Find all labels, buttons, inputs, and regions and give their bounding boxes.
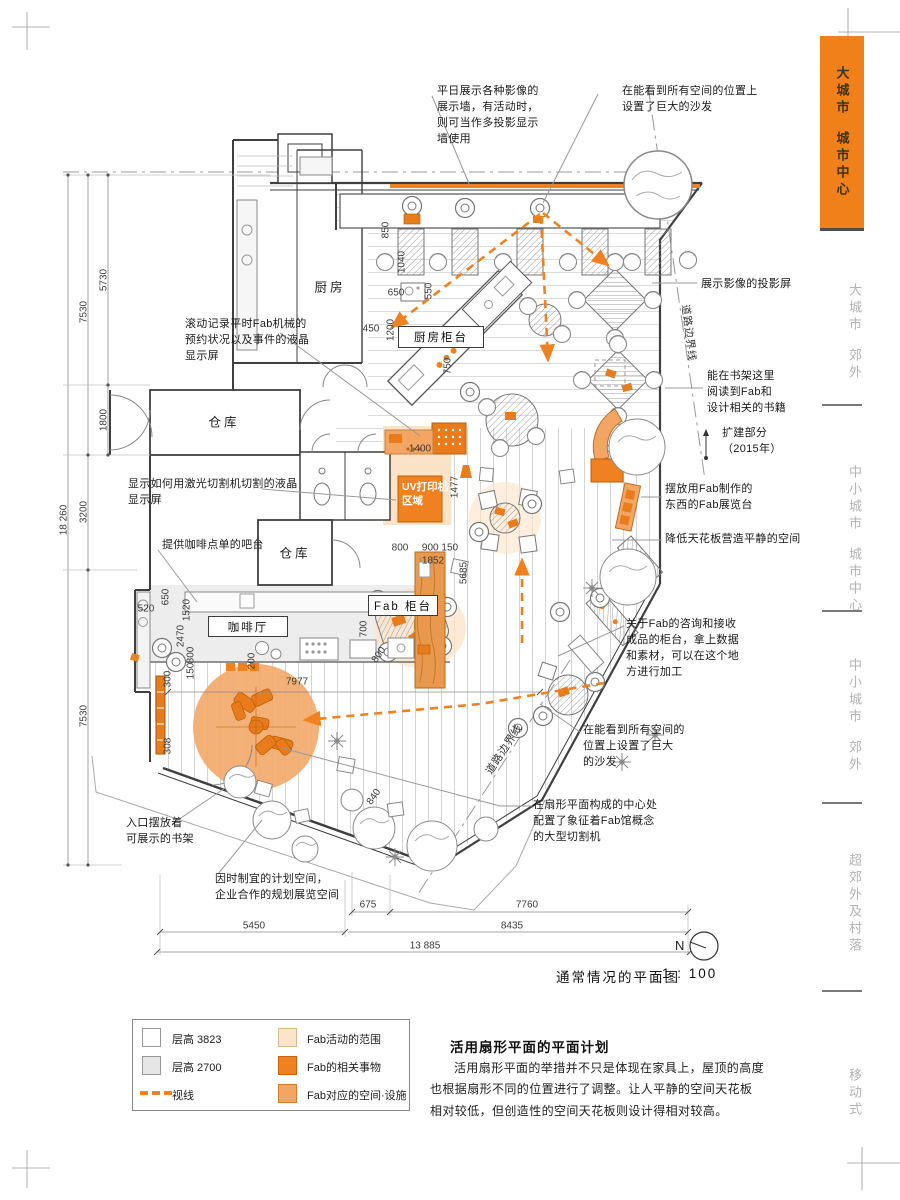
sidebar-item-big-city-center: 大城市城市中心 (820, 36, 864, 231)
legend-label: 层高 3823 (172, 1031, 222, 1047)
legend-label: 层高 2700 (172, 1059, 222, 1075)
dim-7977: 7977 (286, 677, 308, 688)
dim-1520: 1520 (182, 599, 193, 621)
dim-1477: 1477 (450, 476, 461, 498)
dim-900-150: 900 150 (422, 543, 458, 554)
book-page: { "colors": { "accent": "#f0801a", "acce… (0, 0, 900, 1200)
dim-7760: 7760 (516, 900, 538, 911)
dim-800-cafe: 800 (186, 647, 197, 664)
dim-3200: 3200 (79, 501, 90, 523)
dim-1400: 1400 (409, 444, 431, 455)
dim-550: 550 (424, 283, 435, 300)
dim-675: 675 (360, 900, 377, 911)
note-bookshelf-read: 能在书架这里 阅读到Fab和 设计相关的书籍 (707, 369, 786, 417)
note-big-sofa-bottom: 在能看到所有空间的 位置上设置了巨大 的沙发 (583, 723, 685, 771)
room-label-storage-2: 仓库 (279, 543, 310, 562)
legend-label: Fab的相关事物 (307, 1059, 381, 1075)
legend-label: Fab对应的空间·设施 (307, 1087, 407, 1103)
dim-7530-top: 7530 (79, 301, 90, 323)
dim-308: 308 (163, 738, 174, 755)
sidebar-item-mid-city-center: 中小城市城市中心 (820, 465, 864, 615)
room-label-storage-1: 仓库 (208, 412, 239, 431)
sidebar-item-mobile: 移动式 (820, 1068, 864, 1133)
legend-swatch-height-3823 (142, 1028, 161, 1047)
sidebar-divider (822, 610, 862, 612)
note-coffee-bar: 提供咖啡点单的吧台 (162, 538, 264, 554)
dim-2470: 2470 (176, 625, 187, 647)
note-display-wall: 平日展示各种影像的 展示墙，有活动时， 则可当作多投影显示 墙使用 (437, 84, 539, 148)
legend-swatch-sight-line (140, 1091, 172, 1095)
dim-7530-bottom: 7530 (79, 705, 90, 727)
note-fab-consult: 关于Fab的咨询和接收 成品的柜台，拿上数据 和素材，可以在这个地 方进行加工 (626, 617, 739, 681)
legend-label: 视线 (172, 1087, 194, 1103)
sidebar-divider (822, 990, 862, 992)
room-label-kitchen-counter: 厨房柜台 (398, 326, 484, 348)
room-label-kitchen: 厨房 (314, 277, 345, 296)
dim-850: 850 (381, 222, 392, 239)
note-low-ceiling: 降低天花板营造平静的空间 (665, 532, 801, 548)
dim-1040: 1040 (397, 251, 408, 273)
dim-18260: 18 260 (59, 505, 70, 536)
description-title: 活用扇形平面的平面计划 (450, 1036, 610, 1056)
legend-swatch-height-2700 (142, 1056, 161, 1075)
note-projector: 展示影像的投影屏 (701, 277, 791, 293)
room-label-cafe: 咖啡厅 (208, 616, 288, 637)
legend-swatch-fab-space (278, 1084, 297, 1103)
legend-label: Fab活动的范围 (307, 1031, 381, 1047)
sidebar-divider (822, 802, 862, 804)
sidebar-item-big-city-suburb: 大城市郊外 (820, 283, 864, 382)
sidebar-item-exurb-village: 超郊外及村落 (820, 853, 864, 969)
dim-520: 520 (138, 604, 155, 615)
description-body: 活用扇形平面的举措并不只是体现在家具上，屋顶的高度也根据扇形不同的位置进行了调整… (430, 1058, 764, 1122)
note-expansion: 扩建部分 （2015年） (722, 426, 782, 458)
north-label: N (675, 938, 684, 953)
note-big-sofa-top: 在能看到所有空间的位置上 设置了巨大的沙发 (622, 84, 758, 116)
dim-450: 450 (363, 324, 380, 335)
expansion-arrow-base (704, 456, 708, 460)
dim-300: 300 (163, 671, 174, 688)
sidebar-item-mid-city-suburb: 中小城市郊外 (820, 658, 864, 774)
dim-5685: 5685 (459, 562, 470, 584)
dim-150: 150 (186, 663, 197, 680)
dim-5730: 5730 (99, 269, 110, 291)
note-flexible-space: 因时制宜的计划空间， 企业合作的规划展览空间 (215, 872, 339, 904)
dim-650-kitchen: 650 (388, 288, 405, 299)
dim-650-cafe: 650 (161, 589, 172, 606)
dim-800-fab: 800 (392, 543, 409, 554)
note-laser-lcd: 显示如何用激光切割机切割的液晶 显示屏 (128, 477, 298, 509)
legend-swatch-fab-activity (278, 1028, 297, 1047)
note-entrance-bookshelf: 入口摆放着 可展示的书架 (126, 816, 194, 848)
dim-1800: 1800 (99, 409, 110, 431)
dim-8435: 8435 (501, 921, 523, 932)
room-label-fab-counter: Fab 柜台 (368, 595, 438, 616)
dim-1852: 1852 (422, 556, 444, 567)
dim-200: 200 (247, 653, 258, 670)
dim-5450: 5450 (243, 921, 265, 932)
dim-13885: 13 885 (410, 941, 441, 952)
dim-750: 750 (443, 358, 454, 375)
note-fab-display-stand: 摆放用Fab制作的 东西的Fab展览台 (665, 482, 753, 514)
sidebar-divider (822, 404, 862, 406)
note-cutting-machine: 在扇形平面构成的中心处 配置了象征着Fab馆概念 的大型切割机 (533, 798, 657, 846)
room-label-uv-printer: UV打印机 区域 (402, 481, 448, 508)
plan-scale: 1 : 100 (662, 966, 717, 981)
dim-700: 700 (359, 621, 370, 638)
legend-swatch-fab-things (278, 1056, 297, 1075)
north-compass (690, 932, 718, 960)
note-lcd-schedule: 滚动记录平时Fab机械的 预约状况以及事件的液晶 显示屏 (185, 317, 309, 365)
dim-1200: 1200 (386, 319, 397, 341)
sidebar-label: 大城市 (833, 66, 852, 117)
